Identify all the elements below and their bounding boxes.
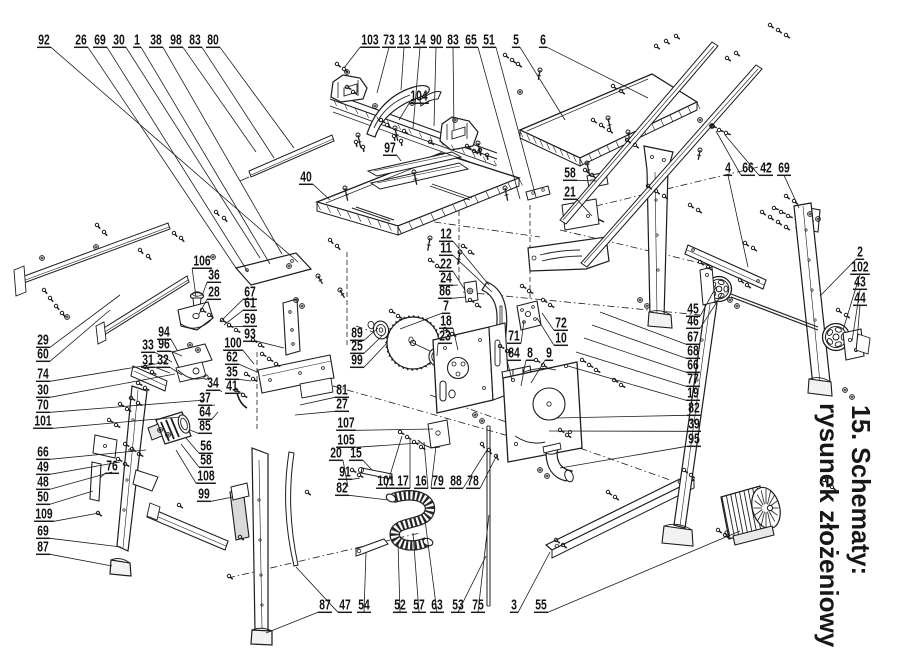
svg-text:5: 5	[513, 32, 519, 49]
svg-text:82: 82	[336, 480, 348, 497]
svg-text:rysunek złożeniowy: rysunek złożeniowy	[814, 403, 844, 648]
svg-text:16: 16	[415, 473, 427, 490]
svg-text:40: 40	[300, 169, 312, 186]
svg-text:3: 3	[511, 597, 517, 614]
svg-text:38: 38	[150, 32, 162, 49]
svg-text:97: 97	[384, 140, 396, 157]
svg-text:23: 23	[439, 328, 451, 345]
svg-text:84: 84	[508, 345, 520, 362]
svg-text:4: 4	[725, 160, 731, 177]
svg-text:87: 87	[37, 539, 49, 556]
svg-text:90: 90	[430, 32, 442, 49]
svg-text:32: 32	[157, 352, 169, 369]
svg-text:87: 87	[319, 597, 331, 614]
svg-text:91: 91	[339, 464, 351, 481]
svg-text:50: 50	[37, 489, 49, 506]
svg-text:41: 41	[226, 378, 238, 395]
svg-text:1: 1	[134, 32, 140, 49]
svg-text:76: 76	[106, 458, 118, 475]
svg-text:8: 8	[527, 345, 533, 362]
svg-text:27: 27	[336, 396, 348, 413]
svg-text:69: 69	[94, 32, 106, 49]
svg-text:30: 30	[113, 32, 125, 49]
svg-text:88: 88	[450, 473, 462, 490]
svg-text:108: 108	[197, 468, 214, 485]
svg-text:109: 109	[35, 506, 52, 523]
svg-text:55: 55	[535, 597, 547, 614]
svg-text:47: 47	[339, 597, 351, 614]
svg-text:107: 107	[337, 415, 354, 432]
svg-text:46: 46	[687, 313, 699, 330]
svg-text:11: 11	[440, 240, 452, 257]
svg-text:73: 73	[383, 32, 395, 49]
svg-text:80: 80	[207, 32, 219, 49]
svg-text:13: 13	[398, 32, 410, 49]
svg-text:71: 71	[508, 328, 520, 345]
svg-text:79: 79	[432, 473, 444, 490]
svg-text:61: 61	[244, 295, 256, 312]
svg-text:101: 101	[34, 413, 52, 430]
svg-text:10: 10	[555, 330, 567, 347]
svg-text:69: 69	[37, 523, 49, 540]
svg-text:60: 60	[37, 346, 49, 363]
svg-text:85: 85	[199, 418, 211, 435]
svg-text:21: 21	[564, 184, 576, 201]
svg-text:99: 99	[351, 352, 363, 369]
svg-text:44: 44	[854, 290, 866, 307]
svg-text:65: 65	[465, 32, 477, 49]
svg-text:92: 92	[38, 32, 50, 49]
svg-text:93: 93	[244, 326, 256, 343]
svg-text:82: 82	[688, 400, 700, 417]
svg-text:28: 28	[208, 284, 220, 301]
svg-text:17: 17	[397, 473, 409, 490]
svg-text:69: 69	[778, 160, 790, 177]
svg-text:51: 51	[483, 32, 495, 49]
svg-text:99: 99	[198, 486, 210, 503]
svg-text:6: 6	[540, 32, 546, 49]
svg-text:70: 70	[37, 397, 49, 414]
svg-text:104: 104	[410, 88, 428, 105]
svg-text:98: 98	[170, 32, 182, 49]
svg-text:95: 95	[688, 431, 700, 448]
svg-text:96: 96	[158, 336, 170, 353]
svg-text:9: 9	[546, 345, 552, 362]
svg-text:31: 31	[142, 352, 154, 369]
svg-text:26: 26	[75, 32, 87, 49]
svg-text:83: 83	[189, 32, 201, 49]
svg-text:58: 58	[564, 165, 576, 182]
svg-text:58: 58	[200, 452, 212, 469]
svg-text:42: 42	[760, 160, 772, 177]
svg-text:74: 74	[37, 366, 49, 383]
svg-text:78: 78	[467, 473, 479, 490]
svg-text:15. Schematy:: 15. Schematy:	[846, 405, 876, 575]
svg-text:15: 15	[350, 445, 362, 462]
svg-text:14: 14	[414, 32, 426, 49]
svg-text:43: 43	[854, 274, 866, 291]
svg-text:36: 36	[208, 267, 220, 284]
svg-text:20: 20	[330, 445, 342, 462]
svg-text:103: 103	[361, 32, 378, 49]
svg-text:83: 83	[447, 32, 459, 49]
